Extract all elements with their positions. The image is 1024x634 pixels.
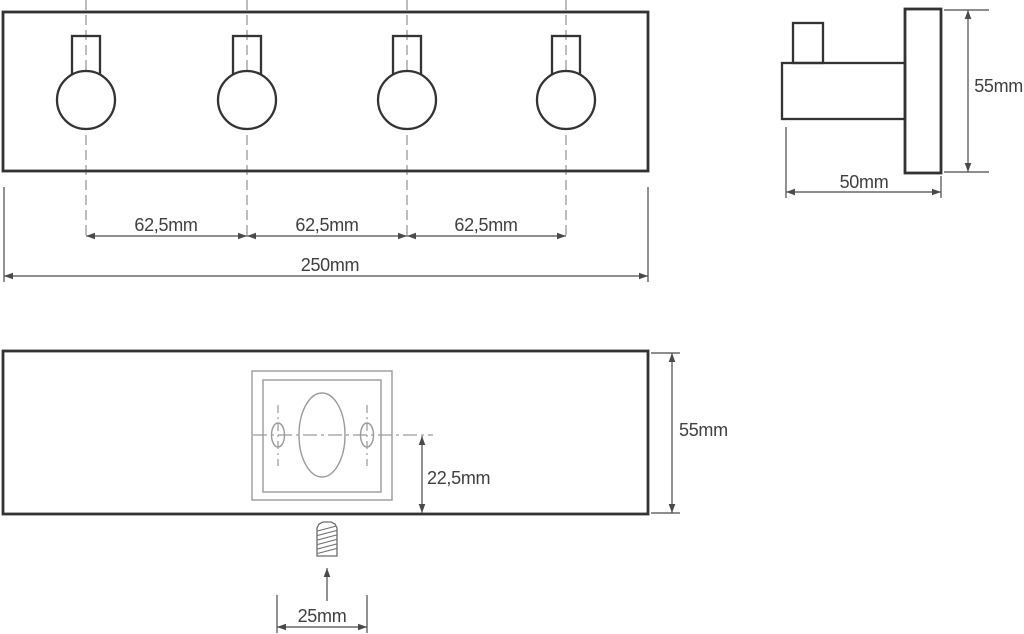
bracket-inner-frame bbox=[263, 380, 381, 492]
technical-drawing: 62,5mm 62,5mm 62,5mm 250mm 55mm bbox=[0, 0, 1024, 634]
dimension-label: 55mm bbox=[679, 420, 728, 440]
screw-offset-dimension: 25mm bbox=[277, 595, 367, 633]
hook-body-section bbox=[782, 63, 905, 119]
side-view: 55mm 50mm bbox=[782, 9, 1023, 198]
spacing-dimension: 62,5mm bbox=[407, 215, 566, 236]
drawing-canvas: 62,5mm 62,5mm 62,5mm 250mm 55mm bbox=[0, 0, 1024, 634]
dimension-label: 62,5mm bbox=[295, 215, 358, 235]
hook-knob bbox=[218, 71, 276, 129]
spacing-dimension: 62,5mm bbox=[86, 215, 247, 236]
dimension-label: 250mm bbox=[301, 255, 360, 275]
dimension-label: 55mm bbox=[974, 76, 1023, 96]
hook-knob bbox=[378, 71, 436, 129]
rail-plate-back-outline bbox=[3, 351, 648, 514]
back-height-dimension: 55mm bbox=[651, 353, 728, 513]
dimension-label: 62,5mm bbox=[454, 215, 517, 235]
depth-dimension: 50mm bbox=[786, 127, 941, 198]
dimension-label: 62,5mm bbox=[134, 215, 197, 235]
height-dimension: 55mm bbox=[944, 10, 1023, 172]
spacing-dimension: 62,5mm bbox=[247, 215, 407, 236]
hook-peg-section bbox=[793, 23, 823, 63]
dimension-label: 50mm bbox=[840, 172, 889, 192]
dimension-label: 22,5mm bbox=[427, 468, 490, 488]
hook-centerlines bbox=[86, 0, 566, 239]
wall-plate-section bbox=[905, 9, 941, 173]
mounting-bracket bbox=[252, 371, 433, 500]
back-view: 22,5mm 55mm 25mm bbox=[3, 351, 728, 633]
hook-knob bbox=[57, 71, 115, 129]
hook-knob bbox=[537, 71, 595, 129]
dimension-label: 25mm bbox=[298, 606, 347, 626]
front-view: 62,5mm 62,5mm 62,5mm 250mm bbox=[3, 0, 648, 282]
mounting-screw-icon bbox=[317, 522, 337, 556]
hole-offset-dimension: 22,5mm bbox=[422, 436, 490, 513]
